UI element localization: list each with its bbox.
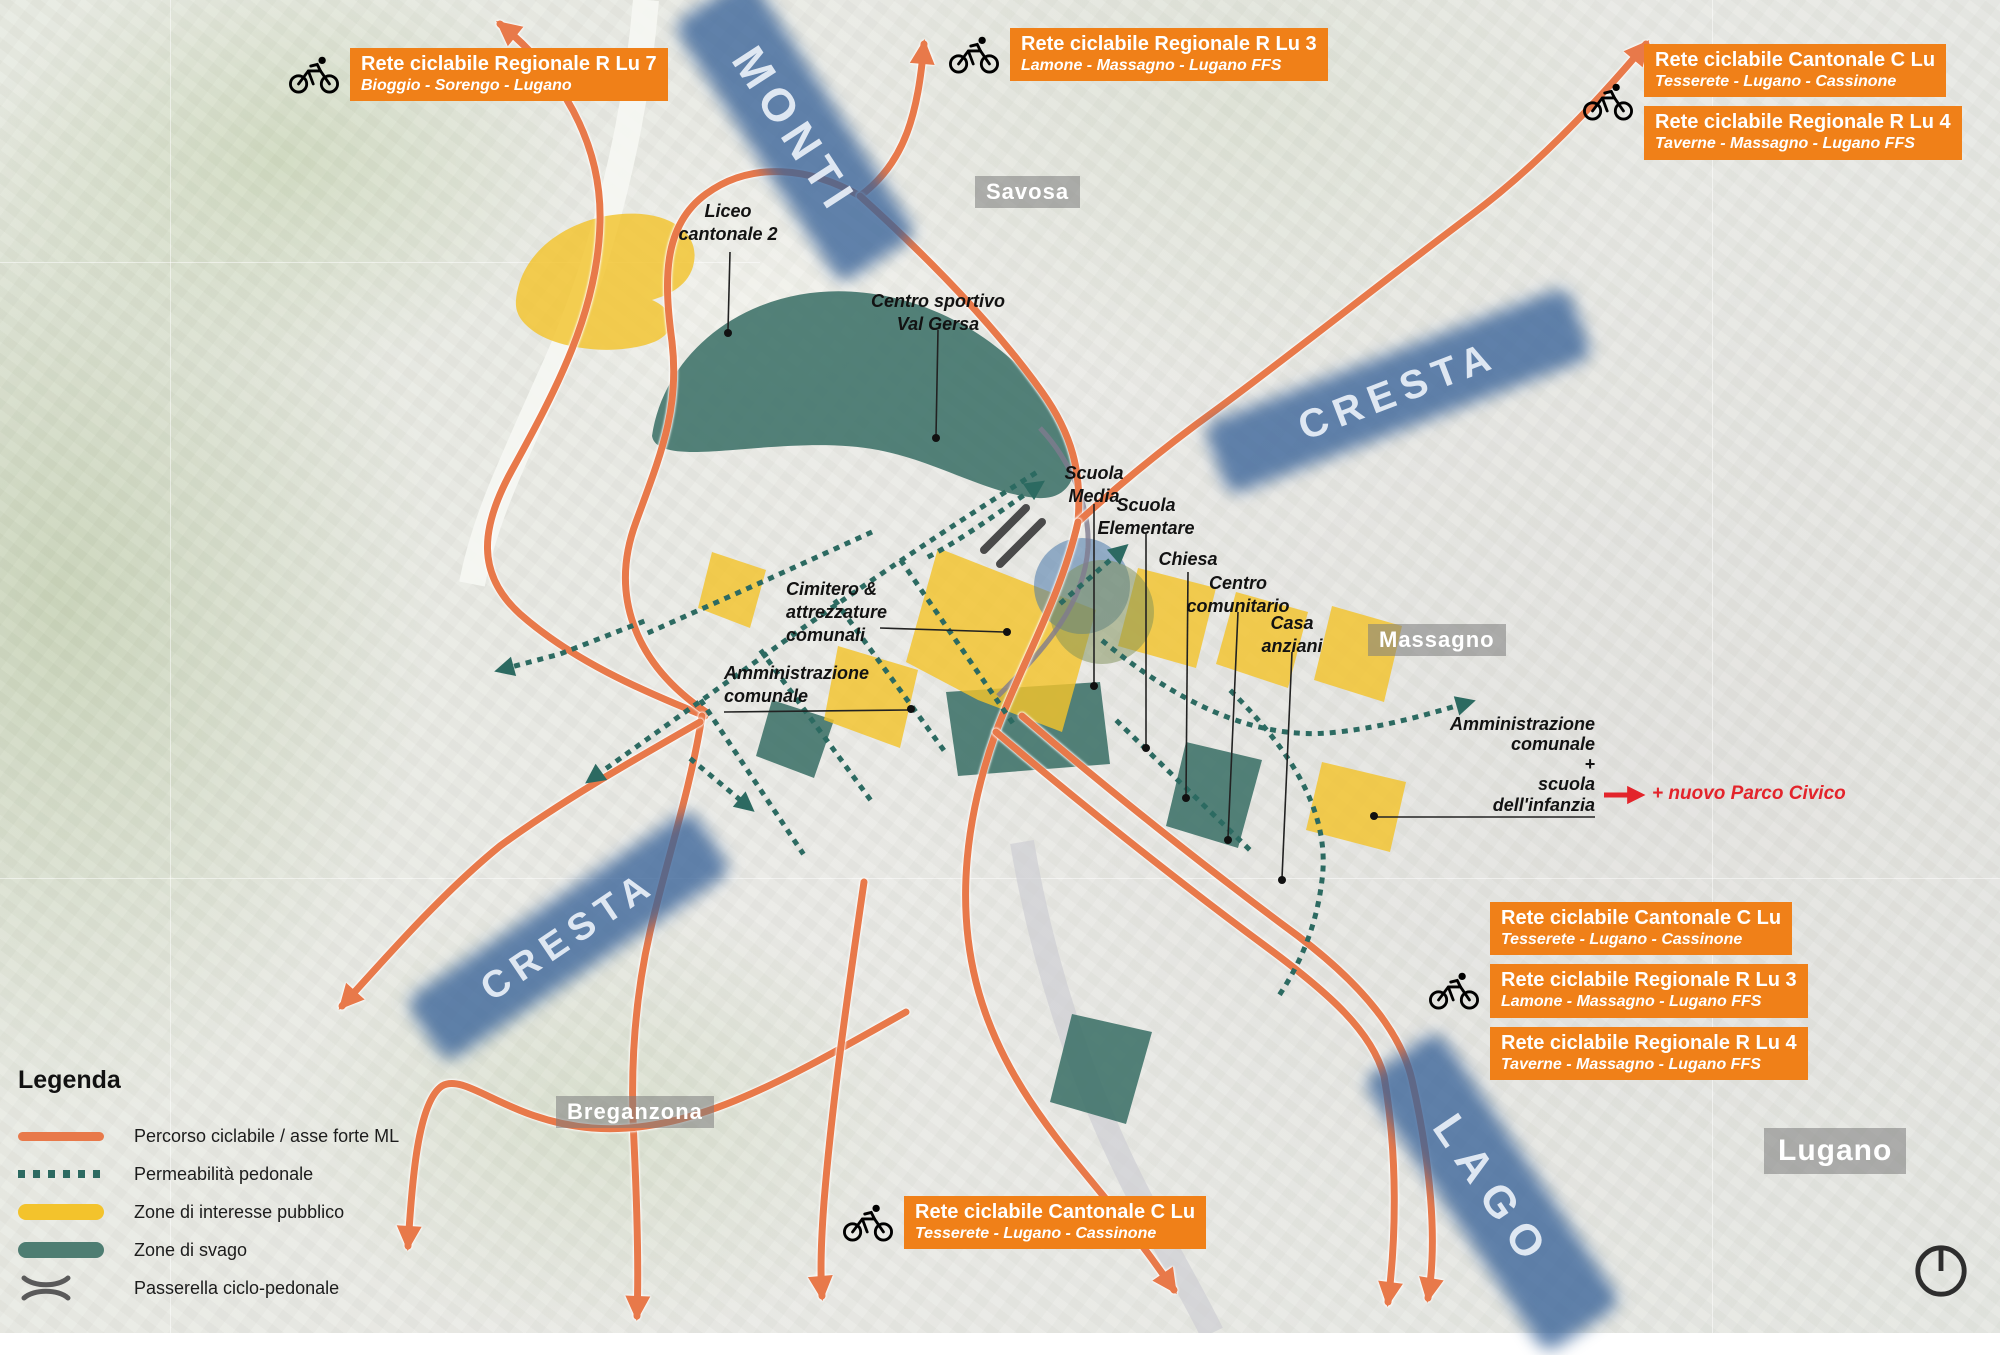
route-label-group-top-left: Rete ciclabile Regionale R Lu 7 Bioggio … xyxy=(288,48,668,101)
bicycle-icon xyxy=(1582,83,1634,121)
legend-item-label: Zone di svago xyxy=(134,1240,247,1261)
route-label-group-mid-right: Rete ciclabile Cantonale C Lu Tesserete … xyxy=(1428,902,1808,1080)
route-label-subtitle: Tesserete - Lugano - Cassinone xyxy=(1501,931,1781,950)
bicycle-icon xyxy=(948,36,1000,74)
legend-item-passerella: Passerella ciclo-pedonale xyxy=(18,1277,399,1299)
annotation-amministrazione-comunale: Amministrazione comunale xyxy=(724,662,869,708)
route-label-title: Rete ciclabile Regionale R Lu 7 xyxy=(361,53,657,77)
route-label-subtitle: Lamone - Massagno - Lugano FFS xyxy=(1021,57,1317,76)
legend-item-public-interest: Zone di interesse pubblico xyxy=(18,1201,399,1223)
route-label-subtitle: Taverne - Massagno - Lugano FFS xyxy=(1501,1056,1797,1075)
route-label-title: Rete ciclabile Cantonale C Lu xyxy=(1501,907,1781,931)
legend-item-recreation: Zone di svago xyxy=(18,1239,399,1261)
route-label: Rete ciclabile Regionale R Lu 4 Taverne … xyxy=(1644,106,1962,159)
pedestrian-dashed-swatch xyxy=(18,1170,104,1178)
legend: Legenda Percorso ciclabile / asse forte … xyxy=(18,1066,399,1315)
legend-item-label: Zone di interesse pubblico xyxy=(134,1202,344,1223)
recreation-swatch xyxy=(18,1242,104,1258)
annotation-scuola-elementare: Scuola Elementare xyxy=(1097,494,1194,540)
route-label-title: Rete ciclabile Regionale R Lu 4 xyxy=(1655,111,1951,135)
route-label: Rete ciclabile Regionale R Lu 3 Lamone -… xyxy=(1490,964,1808,1017)
compass-icon xyxy=(1912,1242,1970,1305)
legend-item-pedestrian: Permeabilità pedonale xyxy=(18,1163,399,1185)
route-label-group-top-right: Rete ciclabile Cantonale C Lu Tesserete … xyxy=(1582,44,1962,160)
route-label-subtitle: Bioggio - Sorengo - Lugano xyxy=(361,77,657,96)
place-label-breganzona: Breganzona xyxy=(556,1096,714,1128)
route-label-subtitle: Tesserete - Lugano - Cassinone xyxy=(915,1225,1195,1244)
public-interest-swatch xyxy=(18,1204,104,1220)
route-label: Rete ciclabile Regionale R Lu 4 Taverne … xyxy=(1490,1027,1808,1080)
route-label: Rete ciclabile Regionale R Lu 7 Bioggio … xyxy=(350,48,668,101)
route-label: Rete ciclabile Cantonale C Lu Tesserete … xyxy=(1490,902,1792,955)
legend-item-label: Passerella ciclo-pedonale xyxy=(134,1278,339,1299)
bicycle-icon xyxy=(288,56,340,94)
mobility-plan-map: MONTI CRESTA CRESTA LAGO Savosa Massagno… xyxy=(0,0,2000,1333)
route-label-group-top-center: Rete ciclabile Regionale R Lu 3 Lamone -… xyxy=(948,28,1328,81)
place-label-savosa: Savosa xyxy=(975,176,1080,208)
bicycle-icon xyxy=(1428,972,1480,1010)
route-label-subtitle: Lamone - Massagno - Lugano FFS xyxy=(1501,993,1797,1012)
route-label-group-bottom-center: Rete ciclabile Cantonale C Lu Tesserete … xyxy=(842,1196,1206,1249)
route-label-title: Rete ciclabile Regionale R Lu 3 xyxy=(1501,969,1797,993)
route-label-title: Rete ciclabile Cantonale C Lu xyxy=(1655,49,1935,73)
cycle-route-swatch xyxy=(18,1132,104,1141)
legend-item-cycle-route: Percorso ciclabile / asse forte ML xyxy=(18,1125,399,1147)
annotation-chiesa: Chiesa xyxy=(1158,548,1217,571)
passerella-icon xyxy=(18,1272,104,1304)
annotation-amministrazione-scuola-infanzia: Amministrazione comunale + scuola dell'i… xyxy=(1450,714,1595,815)
legend-item-label: Permeabilità pedonale xyxy=(134,1164,313,1185)
annotation-cimitero: Cimitero & attrezzature comunali xyxy=(786,578,887,647)
place-label-massagno: Massagno xyxy=(1368,624,1506,656)
route-label: Rete ciclabile Cantonale C Lu Tesserete … xyxy=(1644,44,1946,97)
route-label-title: Rete ciclabile Regionale R Lu 4 xyxy=(1501,1032,1797,1056)
annotation-liceo: Liceo cantonale 2 xyxy=(678,200,777,246)
legend-title: Legenda xyxy=(18,1066,399,1095)
route-label-title: Rete ciclabile Regionale R Lu 3 xyxy=(1021,33,1317,57)
bicycle-icon xyxy=(842,1204,894,1242)
route-label-title: Rete ciclabile Cantonale C Lu xyxy=(915,1201,1195,1225)
legend-item-label: Percorso ciclabile / asse forte ML xyxy=(134,1126,399,1147)
annotation-nuovo-parco-civico: + nuovo Parco Civico xyxy=(1652,782,1846,806)
route-label-subtitle: Taverne - Massagno - Lugano FFS xyxy=(1655,135,1951,154)
route-label-subtitle: Tesserete - Lugano - Cassinone xyxy=(1655,73,1935,92)
place-label-lugano: Lugano xyxy=(1764,1128,1906,1174)
route-label: Rete ciclabile Regionale R Lu 3 Lamone -… xyxy=(1010,28,1328,81)
annotation-casa-anziani: Casa anziani xyxy=(1261,612,1322,658)
annotation-centro-sportivo: Centro sportivo Val Gersa xyxy=(871,290,1005,336)
route-label: Rete ciclabile Cantonale C Lu Tesserete … xyxy=(904,1196,1206,1249)
